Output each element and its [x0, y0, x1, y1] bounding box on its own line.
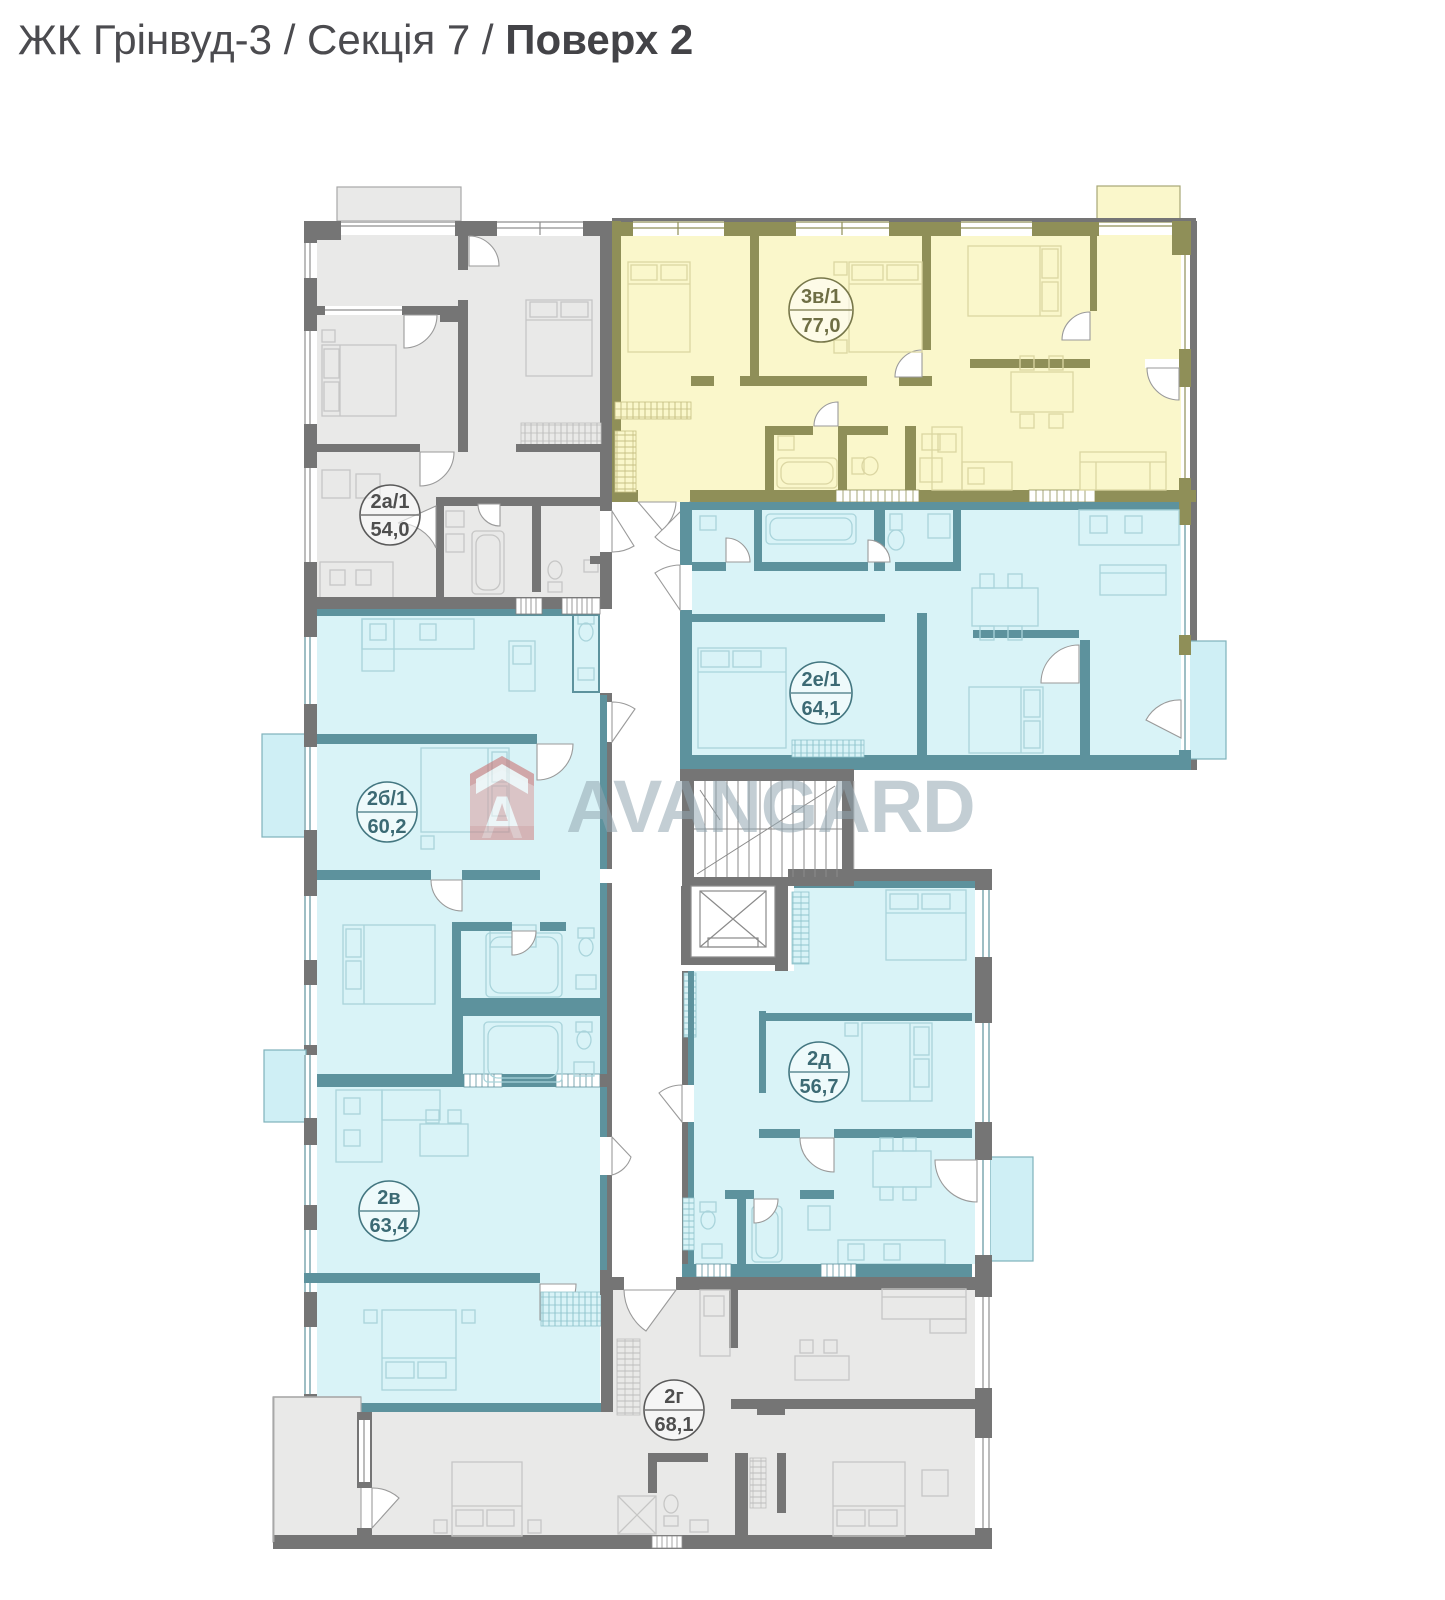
svg-text:54,0: 54,0	[371, 519, 410, 541]
svg-text:68,1: 68,1	[655, 1414, 694, 1436]
svg-text:3в/1: 3в/1	[801, 286, 841, 308]
svg-text:2б/1: 2б/1	[367, 788, 407, 810]
svg-text:AVANGARD: AVANGARD	[566, 765, 975, 848]
svg-text:2г: 2г	[664, 1386, 683, 1408]
svg-text:77,0: 77,0	[802, 315, 841, 337]
svg-text:2а/1: 2а/1	[371, 491, 410, 513]
svg-text:63,4: 63,4	[370, 1215, 410, 1237]
svg-text:56,7: 56,7	[800, 1076, 839, 1098]
svg-text:2е/1: 2е/1	[802, 669, 841, 691]
svg-text:64,1: 64,1	[802, 698, 841, 720]
svg-text:2в: 2в	[377, 1187, 400, 1209]
svg-text:A: A	[480, 784, 523, 851]
svg-text:2д: 2д	[807, 1048, 831, 1070]
svg-text:60,2: 60,2	[368, 816, 407, 838]
